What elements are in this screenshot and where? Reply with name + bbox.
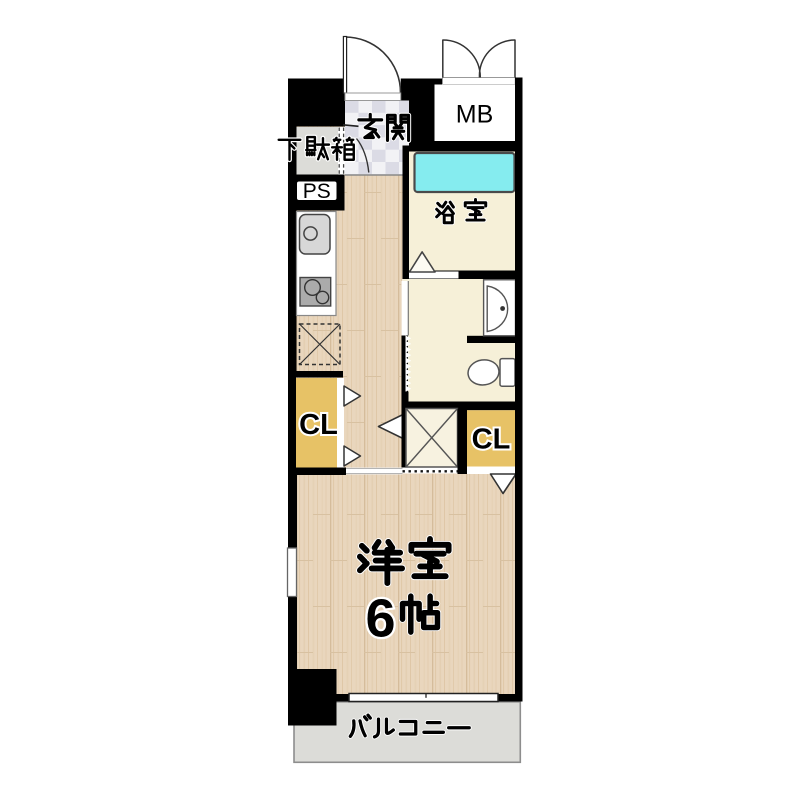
svg-text:CL: CL bbox=[472, 424, 511, 456]
svg-text:MB: MB bbox=[456, 101, 494, 129]
svg-text:PS: PS bbox=[303, 180, 331, 203]
svg-text:6: 6 bbox=[365, 589, 395, 649]
svg-text:CL: CL bbox=[299, 409, 338, 441]
